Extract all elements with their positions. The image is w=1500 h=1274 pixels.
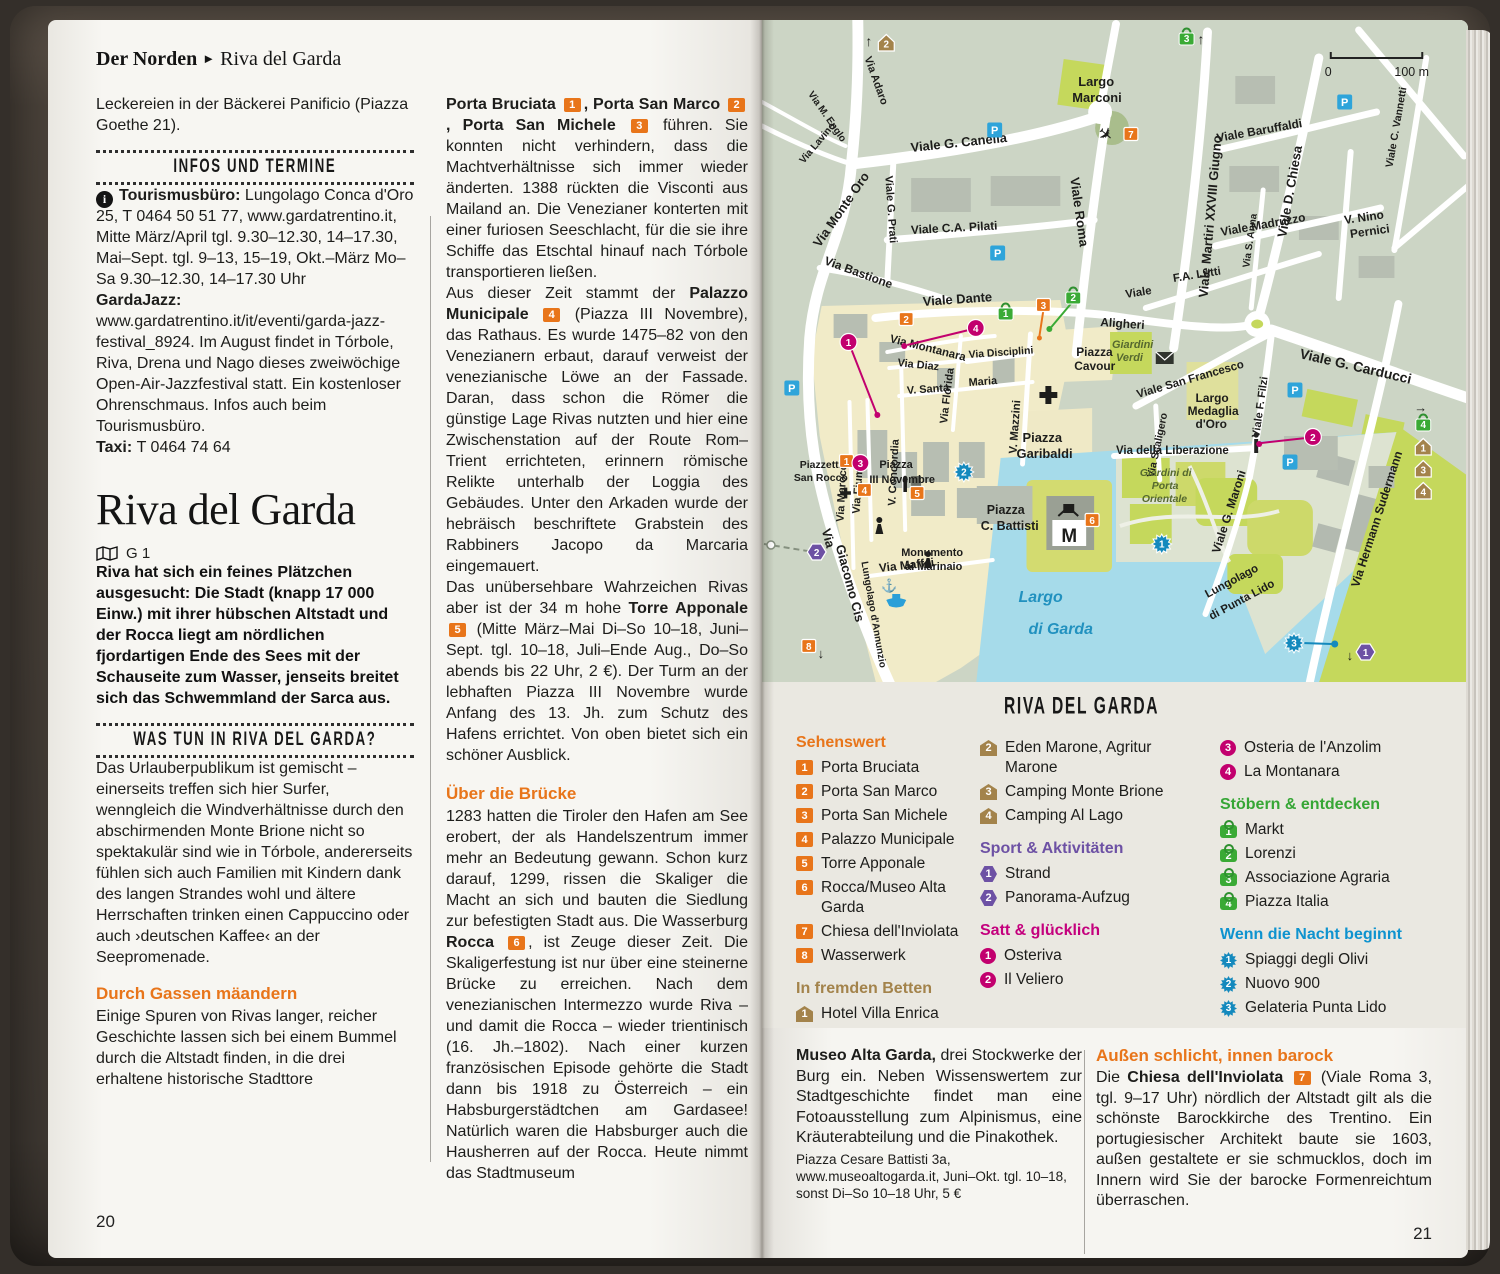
museum-paragraph: Museo Alta Garda, drei Stockwerke der Bu…: [796, 1046, 1082, 1149]
sport-title: Sport & Aktivitäten: [980, 840, 1176, 858]
museum-details: Piazza Cesare Battisti 3a, www.museoalto…: [796, 1151, 1082, 1202]
offmap-arrow: →: [1414, 400, 1427, 415]
svg-text:4: 4: [1420, 487, 1426, 498]
hotel-marker-icon: 3: [980, 784, 997, 800]
legend-item: 3Gelateria Punta Lido: [1220, 998, 1444, 1018]
page-right: M: [762, 20, 1468, 1258]
gassen-paragraph: Einige Spuren von Rivas langer, reicher …: [96, 1006, 414, 1090]
breadcrumb-arrow-icon: ►: [202, 51, 215, 66]
svg-text:di Garda: di Garda: [1028, 621, 1093, 638]
legend-item: 3Osteria de l'Anzolim: [1220, 738, 1444, 758]
legend-item: 4La Montanara: [1220, 762, 1444, 782]
sport-marker-icon: 1: [980, 866, 997, 882]
church-paragraph: Die Chiesa dell'Inviolata 7 (Viale Roma …: [1096, 1068, 1432, 1212]
palazzo-paragraph: Aus dieser Zeit stammt der Palazzo Munic…: [446, 283, 748, 577]
column-divider: [430, 216, 431, 1162]
city-map: M: [762, 20, 1468, 682]
legend-item: 1Strand: [980, 864, 1176, 884]
breadcrumb-section: Der Norden: [96, 48, 197, 70]
svg-text:Piazza: Piazza: [987, 503, 1025, 517]
svg-text:Cavour: Cavour: [1074, 359, 1115, 373]
parking-icon: P: [990, 246, 1005, 261]
marker-sight-5: 5: [910, 487, 924, 500]
middle-column: Porta Bruciata 1, Porta San Marco 2, Por…: [446, 94, 748, 1184]
porta-paragraph: Porta Bruciata 1, Porta San Marco 2, Por…: [446, 94, 748, 283]
svg-text:2: 2: [884, 39, 890, 50]
svg-text:3: 3: [1291, 638, 1297, 649]
svg-text:Verdi: Verdi: [1116, 352, 1144, 364]
page-number-left: 20: [96, 1212, 115, 1232]
sight-marker-icon: 8: [796, 948, 813, 963]
svg-text:Giardini: Giardini: [1112, 339, 1154, 351]
sight-marker-icon: 7: [796, 924, 813, 939]
lead-paragraph: Riva hat sich ein feines Plätzchen ausge…: [96, 562, 414, 709]
intro-paragraph: Leckereien in der Bäckerei Panificio (Pi…: [96, 94, 414, 136]
legend-item: 7Chiesa dell'Inviolata: [796, 922, 972, 942]
marker-food-4: 4: [967, 320, 984, 337]
sight-marker-icon: 3: [796, 808, 813, 823]
map-reference: G 1: [96, 545, 414, 562]
legend-item: 1Osteriva: [980, 946, 1176, 966]
church-info-box: Außen schlicht, innen barock Die Chiesa …: [1096, 1046, 1432, 1212]
taxi-info: Taxi: T 0464 74 64: [96, 437, 414, 458]
city-heading: Riva del Garda: [96, 484, 414, 535]
svg-text:100 m: 100 m: [1394, 65, 1429, 79]
marker-sight-4: 4: [857, 484, 871, 497]
legend-item: 1Markt: [1220, 820, 1444, 840]
svg-text:San Rocco: San Rocco: [794, 473, 848, 484]
shop-marker-icon: 4: [1220, 897, 1237, 910]
svg-text:Piazza: Piazza: [879, 459, 913, 471]
sight-marker-icon: 1: [796, 760, 813, 775]
legend-item: 3Associazione Agraria: [1220, 868, 1444, 888]
svg-text:4: 4: [1420, 420, 1426, 431]
sport-marker-icon: 2: [980, 890, 997, 906]
legend-column-3: 3Osteria de l'Anzolim 4La Montanara Stöb…: [1220, 734, 1444, 1022]
svg-text:5: 5: [914, 489, 920, 500]
sight-marker-icon: 5: [796, 856, 813, 871]
legend-item: 4Camping Al Lago: [980, 806, 1176, 826]
offmap-arrow: ↑: [1198, 31, 1205, 47]
svg-text:1: 1: [1420, 443, 1426, 454]
parking-icon: P: [1283, 455, 1298, 470]
legend-item: 3Camping Monte Brione: [980, 782, 1176, 802]
map-icon: [96, 546, 118, 561]
night-marker-icon: 2: [1220, 976, 1237, 993]
sight-marker-icon: 4: [796, 832, 813, 847]
map-legend: RIVA DEL GARDA Sehenswert 1Porta Bruciat…: [762, 682, 1468, 1028]
museum-info-box: Museo Alta Garda, drei Stockwerke der Bu…: [796, 1046, 1082, 1202]
legend-item: 2Panorama-Aufzug: [980, 888, 1176, 908]
page-stack-edge: [1466, 30, 1490, 1250]
marker-sight-1: 1: [840, 455, 854, 468]
marker-sight-2: 2: [899, 313, 913, 326]
satt-title: Satt & glücklich: [980, 922, 1176, 940]
rocca-paragraph: 1283 hatten die Tiroler den Hafen am See…: [446, 806, 748, 1184]
marker-food-1: 1: [840, 334, 857, 351]
museum-m-icon: M: [1061, 526, 1077, 547]
svg-text:al Marinaio: al Marinaio: [905, 561, 962, 573]
church-box-title: Außen schlicht, innen barock: [1096, 1046, 1432, 1066]
svg-text:Via della Liberazione: Via della Liberazione: [1116, 445, 1229, 457]
parking-icon: P: [987, 123, 1002, 138]
wastun-paragraph: Das Urlauberpublikum ist gemischt – eine…: [96, 758, 414, 968]
legend-item: 6Rocca/Museo Alta Garda: [796, 878, 972, 918]
svg-text:0: 0: [1325, 65, 1332, 79]
shop-marker-icon: 2: [1220, 849, 1237, 862]
svg-text:4: 4: [862, 486, 868, 497]
gardajazz-info: GardaJazz: www.gardatrentino.it/it/event…: [96, 290, 414, 437]
sight-marker-icon: 2: [796, 784, 813, 799]
dotted-rule: [96, 723, 414, 726]
svg-text:2: 2: [1310, 433, 1316, 444]
svg-text:2: 2: [903, 315, 909, 326]
anchor-icon: ⚓: [881, 578, 897, 593]
hotel-marker-icon: 2: [980, 740, 997, 756]
hotel-marker-icon: 4: [980, 808, 997, 824]
svg-text:Giardini di: Giardini di: [1140, 468, 1193, 479]
marker-food-3: 3: [852, 455, 869, 472]
svg-text:III Novembre: III Novembre: [869, 474, 935, 486]
legend-column-2: 2Eden Marone, Agritur Marone 3Camping Mo…: [980, 734, 1176, 994]
marker-sight-7: 7: [1124, 128, 1138, 141]
svg-text:Orientale: Orientale: [1142, 494, 1187, 505]
svg-text:Medaglia: Medaglia: [1188, 404, 1239, 418]
svg-text:Largo: Largo: [1019, 589, 1063, 606]
dotted-rule: [96, 150, 414, 153]
infos-heading: INFOS UND TERMINE: [96, 157, 414, 176]
gassen-subhead: Durch Gassen mäandern: [96, 984, 414, 1004]
map-grid-ref: G 1: [126, 545, 150, 562]
tourist-office-info: iTourismusbüro: Lungolago Conca d'Oro 25…: [96, 185, 414, 290]
page-number-right: 21: [1392, 1224, 1432, 1244]
marker-food-2: 2: [1304, 429, 1321, 446]
food-marker-icon: 1: [980, 948, 996, 964]
legend-item: 2Nuovo 900: [1220, 974, 1444, 994]
offmap-arrow: ↓: [1347, 648, 1353, 663]
sehenswert-title: Sehenswert: [796, 734, 972, 752]
info-icon: i: [96, 191, 113, 208]
legend-item: 4Palazzo Municipale: [796, 830, 972, 850]
svg-text:Marconi: Marconi: [1072, 90, 1122, 105]
food-marker-icon: 3: [1220, 740, 1236, 756]
svg-text:P: P: [1286, 457, 1293, 469]
post-icon: [1156, 352, 1174, 364]
marker-sport-1: 1: [1356, 644, 1375, 660]
svg-text:7: 7: [1128, 130, 1134, 141]
offmap-arrow: ↑: [865, 33, 872, 49]
svg-text:8: 8: [806, 642, 812, 653]
svg-text:Largo: Largo: [1078, 74, 1114, 89]
svg-text:Porta: Porta: [1152, 481, 1179, 492]
legend-item: 2Lorenzi: [1220, 844, 1444, 864]
legend-item: 1Hotel Villa Enrica: [796, 1004, 972, 1024]
svg-text:P: P: [1291, 385, 1298, 397]
svg-text:4: 4: [973, 324, 979, 335]
breadcrumb-title: Riva del Garda: [220, 48, 341, 70]
legend-item: 2Eden Marone, Agritur Marone: [980, 738, 1176, 778]
food-marker-icon: 2: [980, 972, 996, 988]
svg-text:P: P: [991, 125, 998, 137]
svg-text:1: 1: [1159, 539, 1165, 550]
svg-text:Piazza: Piazza: [1023, 430, 1063, 445]
shop-marker-icon: 1: [1220, 825, 1237, 838]
marker-sight-6: 6: [1085, 514, 1099, 527]
legend-column-1: Sehenswert 1Porta Bruciata 2Porta San Ma…: [796, 734, 972, 1028]
book-spread: Der Norden►Riva del Garda Leckereien in …: [10, 6, 1490, 1266]
stoebern-title: Stöbern & entdecken: [1220, 796, 1444, 814]
svg-text:P: P: [1341, 97, 1348, 109]
legend-item: 4Piazza Italia: [1220, 892, 1444, 912]
parking-icon: P: [1288, 383, 1303, 398]
svg-text:3: 3: [1041, 301, 1047, 312]
svg-text:Largo: Largo: [1196, 391, 1229, 405]
svg-text:Maria: Maria: [968, 375, 998, 389]
page-left: Der Norden►Riva del Garda Leckereien in …: [48, 20, 762, 1258]
breadcrumb: Der Norden►Riva del Garda: [96, 48, 341, 71]
legend-item: 2Il Veliero: [980, 970, 1176, 990]
legend-item: 2Porta San Marco: [796, 782, 972, 802]
betten-title: In fremden Betten: [796, 980, 972, 998]
svg-text:C. Battisti: C. Battisti: [981, 519, 1039, 533]
legend-item: 1Porta Bruciata: [796, 758, 972, 778]
torre-paragraph: Das unübersehbare Wahrzeichen Rivas aber…: [446, 577, 748, 766]
svg-text:P: P: [788, 383, 795, 395]
marker-sight-8: 8: [802, 640, 816, 653]
svg-text:3: 3: [1420, 465, 1426, 476]
legend-item: 5Torre Apponale: [796, 854, 972, 874]
svg-text:1: 1: [1363, 648, 1369, 659]
svg-text:1: 1: [1003, 309, 1009, 320]
lighthouse-icon: [903, 476, 907, 492]
svg-text:1: 1: [846, 338, 852, 349]
food-marker-icon: 4: [1220, 764, 1236, 780]
svg-text:2: 2: [1070, 293, 1076, 304]
svg-text:1: 1: [844, 457, 850, 468]
svg-text:6: 6: [1089, 516, 1095, 527]
offmap-arrow: ↓: [818, 646, 824, 661]
legend-title: RIVA DEL GARDA: [912, 696, 1252, 718]
svg-text:Monumento: Monumento: [901, 547, 963, 559]
svg-text:d'Oro: d'Oro: [1196, 417, 1227, 431]
left-column: Leckereien in der Bäckerei Panificio (Pi…: [96, 94, 414, 1090]
svg-text:Piazza: Piazza: [1076, 345, 1113, 359]
svg-text:P: P: [994, 248, 1001, 260]
svg-text:3: 3: [1184, 34, 1190, 45]
marker-sight-3: 3: [1036, 299, 1050, 312]
wastun-heading: WAS TUN IN RIVA DEL GARDA?: [96, 730, 414, 749]
svg-text:2: 2: [961, 467, 967, 478]
legend-item: 8Wasserwerk: [796, 946, 972, 966]
hotel-marker-icon: 1: [796, 1006, 813, 1022]
nacht-title: Wenn die Nacht beginnt: [1220, 926, 1444, 944]
svg-text:2: 2: [814, 548, 820, 559]
svg-text:Garibaldi: Garibaldi: [1017, 446, 1073, 461]
legend-item: 3Porta San Michele: [796, 806, 972, 826]
svg-text:Piazzetta: Piazzetta: [800, 460, 845, 471]
night-marker-icon: 3: [1220, 1000, 1237, 1017]
shop-marker-icon: 3: [1220, 873, 1237, 886]
bruecke-subhead: Über die Brücke: [446, 784, 748, 804]
night-marker-icon: 1: [1220, 952, 1237, 969]
legend-item: 1Spiaggi degli Olivi: [1220, 950, 1444, 970]
sight-marker-icon: 6: [796, 880, 813, 895]
svg-text:3: 3: [858, 459, 864, 470]
parking-icon: P: [784, 381, 799, 396]
marker-sport-2: 2: [807, 544, 826, 560]
parking-icon: P: [1337, 95, 1352, 110]
box-divider: [1084, 1050, 1085, 1254]
